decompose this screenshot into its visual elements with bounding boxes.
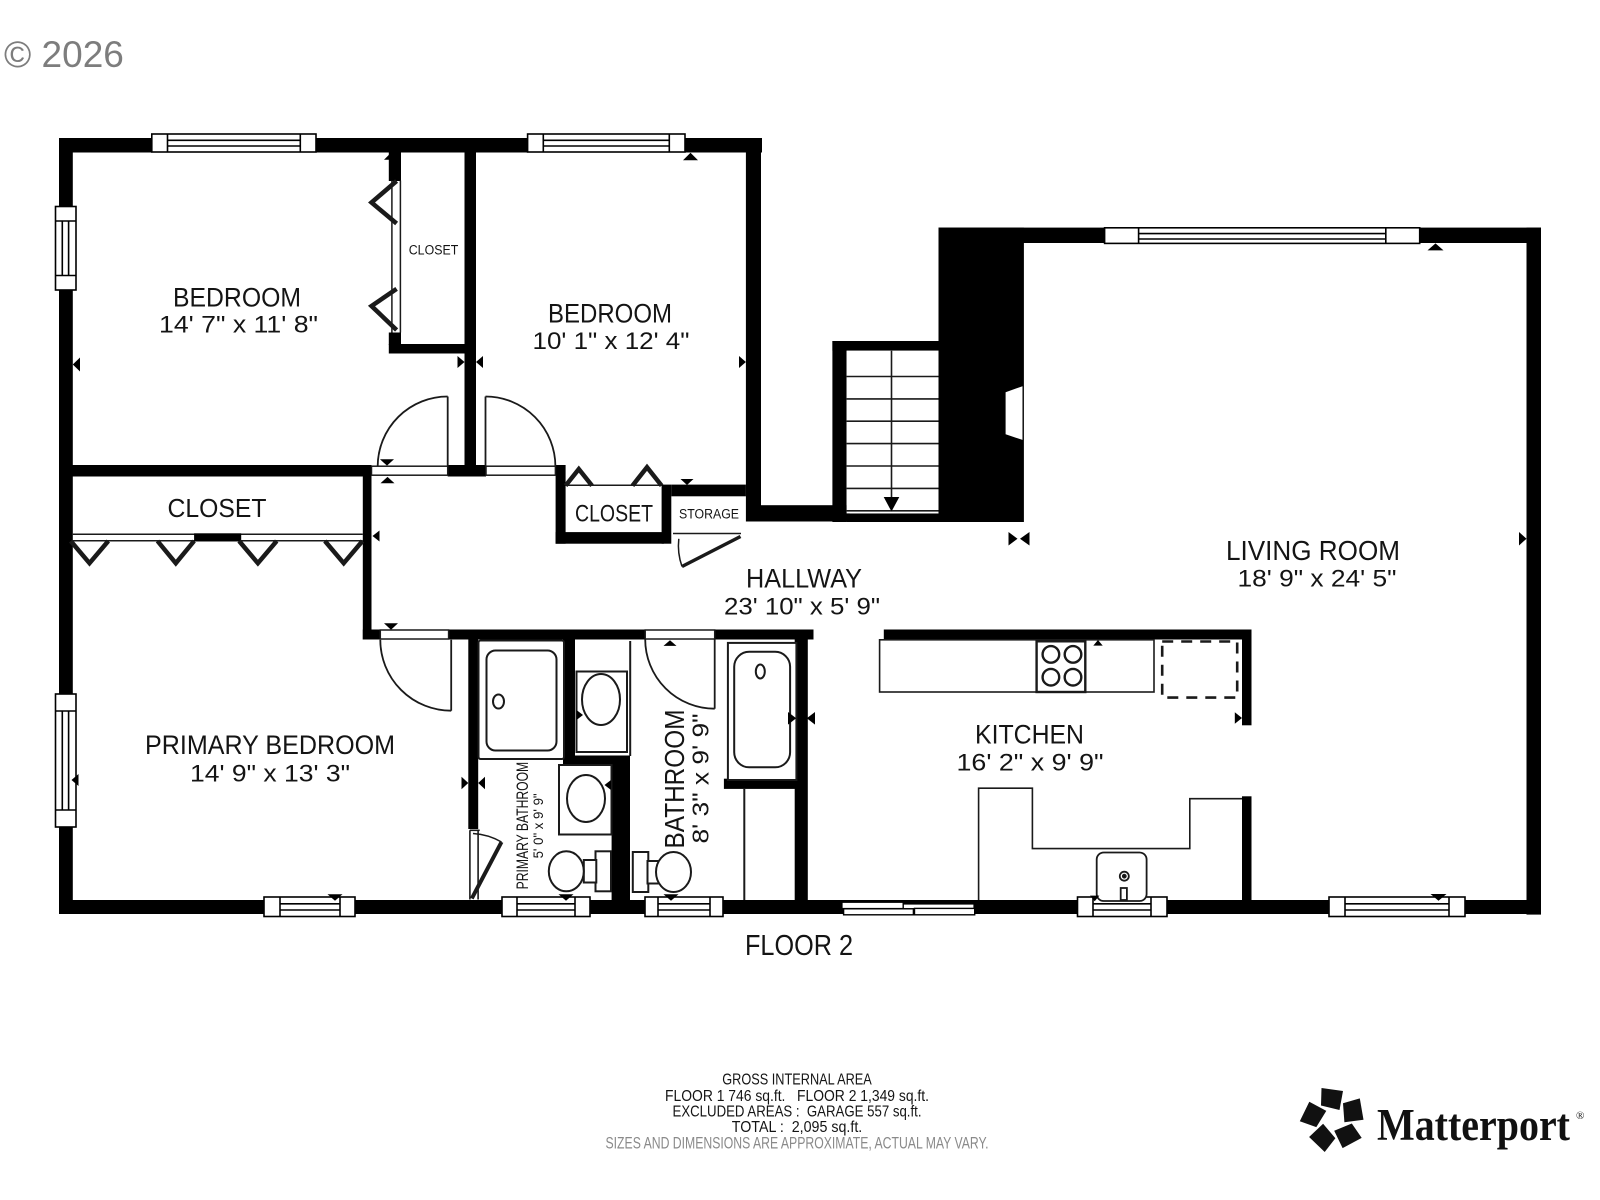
svg-text:Matterport: Matterport [1377,1100,1570,1150]
svg-text:HALLWAY: HALLWAY [746,564,862,594]
svg-text:CLOSET: CLOSET [575,501,653,528]
svg-text:BEDROOM: BEDROOM [173,283,301,313]
svg-text:23' 10" x 5' 9": 23' 10" x 5' 9" [724,594,880,621]
svg-text:SIZES AND DIMENSIONS ARE APPRO: SIZES AND DIMENSIONS ARE APPROXIMATE, AC… [606,1134,989,1153]
svg-text:14' 9" x 13' 3": 14' 9" x 13' 3" [190,761,350,788]
svg-text:5' 0" x 9' 9": 5' 0" x 9' 9" [530,793,546,858]
svg-text:8' 3" x 9' 9": 8' 3" x 9' 9" [688,714,714,844]
svg-text:PRIMARY BEDROOM: PRIMARY BEDROOM [145,730,395,760]
svg-text:STORAGE: STORAGE [679,507,739,522]
svg-text:BATHROOM: BATHROOM [659,710,690,849]
svg-text:CLOSET: CLOSET [409,243,459,258]
svg-text:LIVING ROOM: LIVING ROOM [1226,535,1400,566]
svg-text:FLOOR 2: FLOOR 2 [745,930,853,962]
svg-text:GROSS INTERNAL AREA: GROSS INTERNAL AREA [722,1072,872,1089]
svg-text:16' 2" x 9' 9": 16' 2" x 9' 9" [957,750,1104,777]
svg-text:BEDROOM: BEDROOM [548,299,672,329]
svg-text:18' 9" x 24' 5": 18' 9" x 24' 5" [1238,566,1397,593]
svg-text:EXCLUDED AREAS : GARAGE 557 s: EXCLUDED AREAS : GARAGE 557 sq.ft. [673,1104,922,1121]
svg-text:®: ® [1576,1110,1584,1122]
svg-text:10' 1" x 12' 4": 10' 1" x 12' 4" [533,328,690,355]
svg-text:KITCHEN: KITCHEN [975,720,1084,750]
svg-text:FLOOR 1 746 sq.ft. FLOOR 2 1: FLOOR 1 746 sq.ft. FLOOR 2 1,349 sq.ft. [665,1088,929,1105]
svg-text:14' 7" x 11' 8": 14' 7" x 11' 8" [159,312,318,339]
svg-text:© 2026: © 2026 [4,34,124,75]
svg-text:CLOSET: CLOSET [168,493,267,523]
